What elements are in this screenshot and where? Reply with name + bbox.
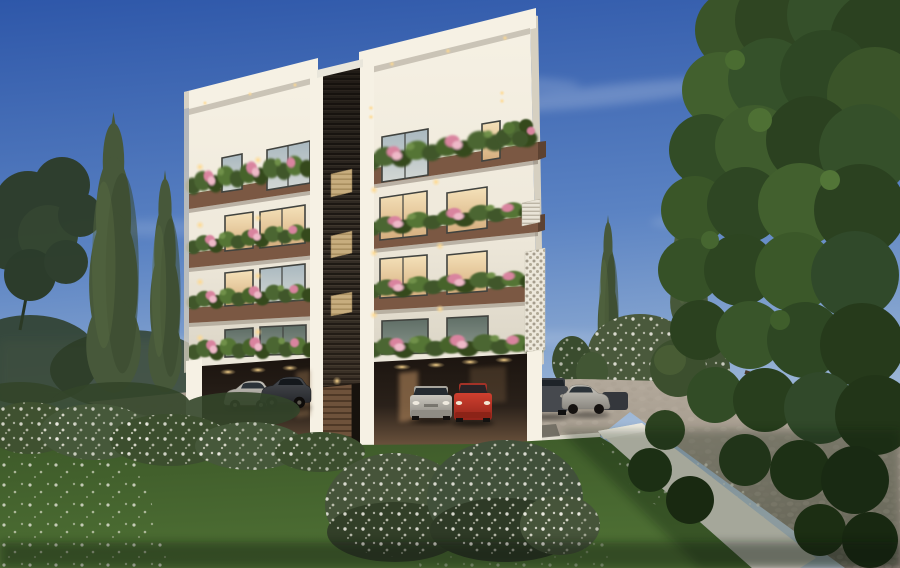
- louvred-core: [310, 59, 374, 454]
- column-outer-right: [527, 350, 542, 450]
- backlit-panel: [331, 292, 352, 316]
- left-edge-shade: [184, 91, 189, 373]
- door-light: [333, 377, 342, 386]
- architectural-render: [0, 0, 900, 568]
- core-pier-left: [310, 74, 323, 454]
- perforated-screen: [525, 248, 545, 352]
- bottom-shade: [0, 542, 900, 568]
- backlit-panel: [331, 169, 352, 197]
- right-block: [359, 8, 546, 371]
- core-pier-right: [360, 62, 374, 452]
- band-end-cap: [538, 141, 546, 160]
- left-block: [183, 58, 318, 373]
- backlit-panel: [331, 231, 352, 258]
- side-slat-balcony: [522, 199, 540, 226]
- car-silver-front-right-bay: [409, 386, 453, 424]
